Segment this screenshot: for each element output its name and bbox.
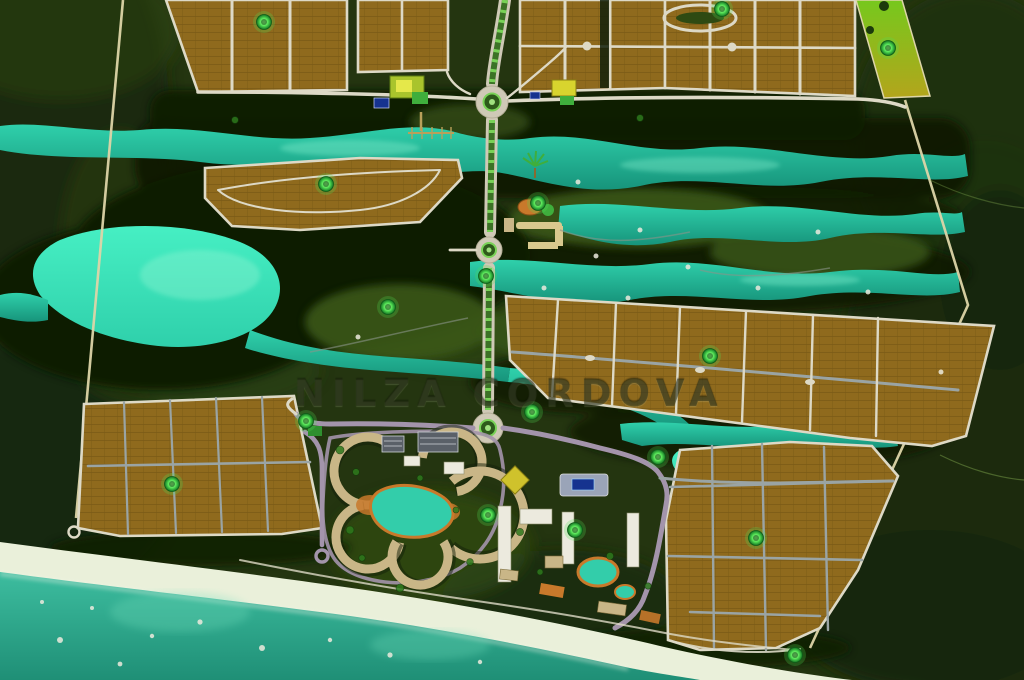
map-marker: [161, 473, 183, 495]
roundabout-middle: [476, 237, 502, 263]
watermark: NILZA CORDOVA: [294, 372, 725, 415]
cul-de-sac: [728, 43, 737, 52]
map-marker: [784, 644, 806, 666]
pool: [578, 558, 618, 586]
resort-building: [444, 462, 464, 474]
roundabout-north: [476, 86, 508, 118]
lot-block-west-angled: [205, 158, 462, 230]
pool-small: [615, 585, 635, 599]
hotel-bar-building: [627, 513, 639, 567]
map-marker: [745, 527, 767, 549]
map-marker: [647, 446, 669, 468]
beach-building: [500, 569, 519, 581]
map-marker: [527, 192, 549, 214]
map-marker: [699, 345, 721, 367]
map-marker: [315, 173, 337, 195]
resort-building: [404, 456, 420, 466]
map-marker: [253, 11, 275, 33]
map-canvas: [0, 0, 1024, 680]
map-marker: [564, 519, 586, 541]
lot-blocks-north: [166, 0, 905, 107]
hotel-building: [520, 509, 552, 524]
cul-de-sac: [583, 42, 592, 51]
resort-building: [545, 556, 563, 568]
green-strip: [600, 0, 609, 88]
map-marker: [377, 296, 399, 318]
resort-master-plan-map: NILZA CORDOVA: [0, 0, 1024, 680]
aqua-club: [560, 474, 608, 496]
map-marker: [877, 37, 899, 59]
map-marker: [477, 504, 499, 526]
lot-block-southwest: [69, 396, 323, 538]
map-marker: [475, 265, 497, 287]
lot-block-nw: [166, 0, 347, 92]
